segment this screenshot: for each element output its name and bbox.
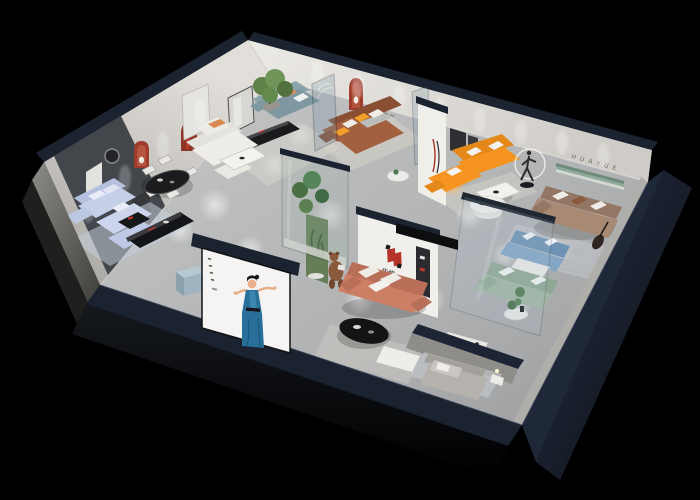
red-arch-niche: [134, 141, 149, 168]
floorplan-render: H U A Y U E: [0, 0, 700, 500]
round-art: [105, 149, 119, 163]
glass-partition: [312, 74, 337, 151]
isometric-scene: H U A Y U E: [0, 0, 700, 500]
